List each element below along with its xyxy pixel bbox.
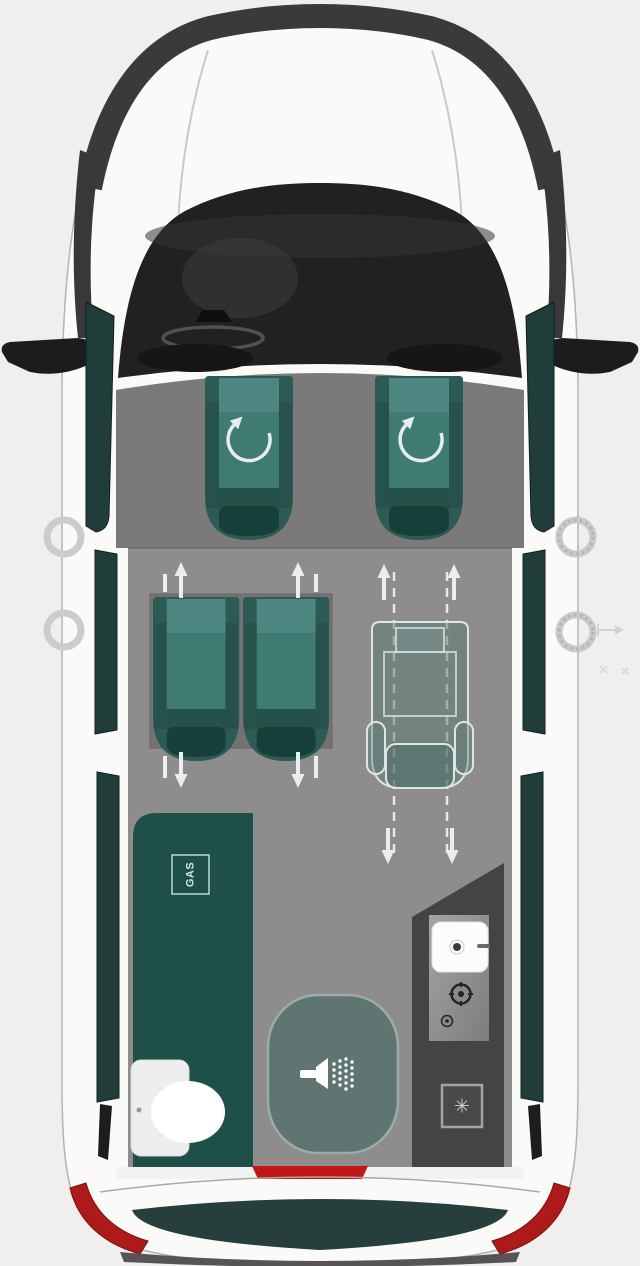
left-mid-window <box>95 550 117 734</box>
toilet-button <box>137 1108 142 1113</box>
right-mid-window <box>523 550 545 734</box>
bench-seat-left <box>153 597 239 761</box>
sink <box>432 922 490 972</box>
heater: ✳ <box>442 1085 482 1127</box>
campervan-floorplan: GAS <box>0 0 640 1266</box>
left-front-window <box>86 302 114 532</box>
ghost-seat-position <box>367 622 473 788</box>
burner-knob-small <box>442 1016 453 1027</box>
front-seat-right <box>375 376 463 540</box>
heater-icon: ✳ <box>454 1097 470 1118</box>
cab-seat-shadow-right <box>387 344 503 372</box>
right-rear-window <box>521 772 543 1102</box>
front-seat-left <box>205 376 293 540</box>
right-front-window <box>526 302 554 532</box>
cab-seat-shadow-left <box>137 344 253 372</box>
sink-drain <box>453 943 461 951</box>
faucet <box>477 944 490 948</box>
gas-label: GAS <box>185 862 197 887</box>
bench-seat-right <box>243 597 329 761</box>
toilet-lid <box>151 1081 225 1143</box>
van-top-view: GAS <box>0 0 640 1266</box>
left-rear-window <box>97 772 119 1102</box>
door-opening-marks <box>598 624 628 674</box>
dashboard-hump <box>182 238 298 318</box>
shower-area <box>268 995 398 1153</box>
